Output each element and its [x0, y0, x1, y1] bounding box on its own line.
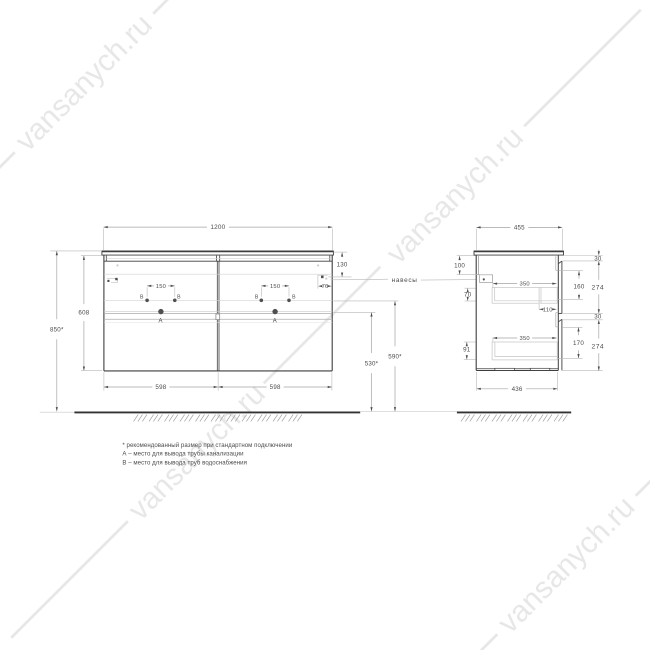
svg-text:455: 455: [514, 225, 525, 232]
svg-text:B: B: [177, 294, 181, 300]
svg-text:436: 436: [512, 386, 523, 393]
svg-text:530*: 530*: [365, 360, 379, 367]
svg-text:130: 130: [337, 262, 348, 269]
svg-text:* рекомендованный размер при с: * рекомендованный размер при стандартном…: [122, 442, 292, 449]
svg-text:850*: 850*: [50, 326, 64, 333]
svg-text:30: 30: [594, 314, 602, 321]
svg-text:навесы: навесы: [392, 277, 418, 284]
svg-text:1200: 1200: [210, 224, 225, 231]
svg-text:A: A: [273, 318, 277, 324]
svg-text:590*: 590*: [388, 353, 402, 360]
svg-text:30: 30: [594, 256, 602, 263]
svg-text:350: 350: [520, 282, 530, 288]
svg-text:B: B: [255, 294, 259, 300]
svg-text:150: 150: [270, 284, 280, 290]
svg-text:598: 598: [155, 384, 166, 391]
svg-text:70: 70: [464, 292, 472, 299]
svg-text:B: B: [140, 294, 144, 300]
svg-text:350: 350: [520, 336, 530, 342]
svg-text:150: 150: [156, 284, 166, 290]
svg-text:274: 274: [592, 343, 605, 350]
svg-text:А – место для вывода трубы кан: А – место для вывода трубы канализации: [122, 451, 243, 458]
svg-text:608: 608: [78, 310, 89, 317]
svg-text:В – место для вывода труб водо: В – место для вывода труб водоснабжения: [122, 460, 247, 467]
svg-text:110: 110: [543, 307, 553, 313]
svg-text:170: 170: [573, 340, 584, 347]
svg-text:B: B: [292, 294, 296, 300]
svg-text:100: 100: [454, 262, 465, 269]
svg-text:A: A: [158, 318, 162, 324]
svg-text:160: 160: [574, 283, 585, 290]
svg-text:274: 274: [592, 284, 605, 291]
svg-text:598: 598: [270, 384, 281, 391]
svg-text:91: 91: [463, 347, 471, 354]
